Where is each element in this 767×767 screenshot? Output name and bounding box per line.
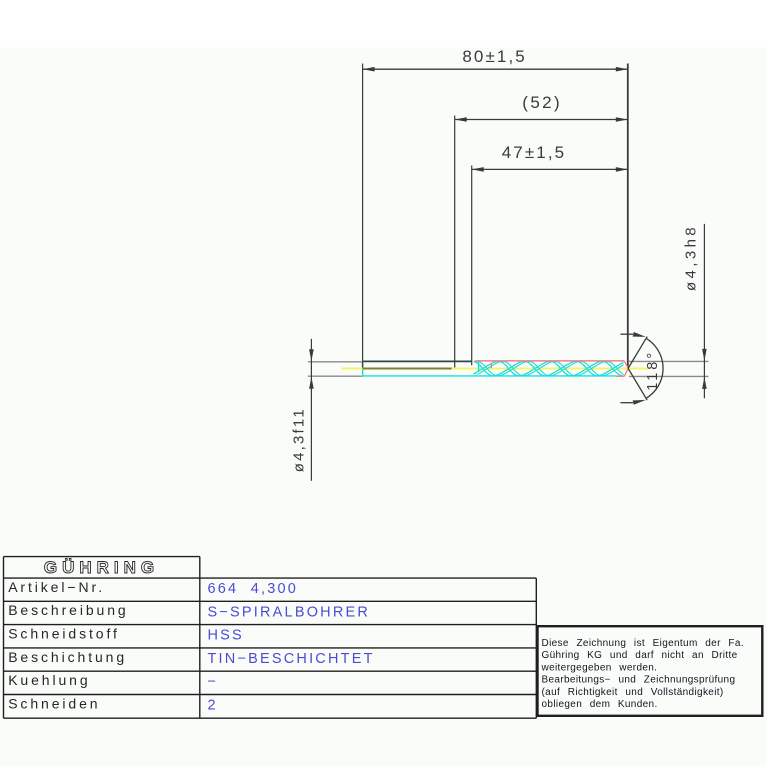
svg-text:HSS: HSS [208, 628, 244, 644]
svg-text:Schneiden: Schneiden [8, 695, 100, 711]
svg-text:(52): (52) [522, 93, 562, 112]
svg-text:GÜHRING: GÜHRING [44, 558, 159, 577]
svg-text:Beschichtung: Beschichtung [8, 649, 127, 665]
svg-text:weitergegeben werden.: weitergegeben werden. [541, 662, 658, 673]
svg-text:(auf Richtigkeit und Vollständ: (auf Richtigkeit und Vollständigkeit) [542, 687, 724, 698]
svg-text:ø4,3h8: ø4,3h8 [683, 224, 700, 291]
svg-text:Diese Zeichnung ist Eigentum d: Diese Zeichnung ist Eigentum der Fa. [542, 638, 744, 649]
svg-text:Artikel−Nr.: Artikel−Nr. [8, 579, 105, 595]
svg-text:80±1,5: 80±1,5 [462, 47, 526, 66]
svg-text:664 4,300: 664 4,300 [208, 581, 299, 597]
svg-text:S−SPIRALBOHRER: S−SPIRALBOHRER [208, 604, 371, 620]
svg-text:Bearbeitungs− und Zeichnungspr: Bearbeitungs− und Zeichnungsprüfung [542, 675, 736, 686]
svg-text:Schneidstoff: Schneidstoff [8, 626, 120, 642]
svg-text:47±1,5: 47±1,5 [502, 143, 566, 162]
svg-text:Gühring KG und darf nicht an D: Gühring KG und darf nicht an Dritte [542, 650, 738, 661]
svg-text:obliegen dem Kunden.: obliegen dem Kunden. [542, 699, 658, 710]
svg-text:TIN−BESCHICHTET: TIN−BESCHICHTET [208, 651, 375, 667]
svg-text:2: 2 [208, 698, 218, 714]
svg-text:ø4,3f11: ø4,3f11 [291, 407, 308, 472]
svg-text:Kuehlung: Kuehlung [8, 672, 90, 688]
svg-text:−: − [208, 674, 219, 690]
svg-text:118°: 118° [645, 350, 661, 391]
svg-text:Beschreibung: Beschreibung [8, 602, 128, 618]
